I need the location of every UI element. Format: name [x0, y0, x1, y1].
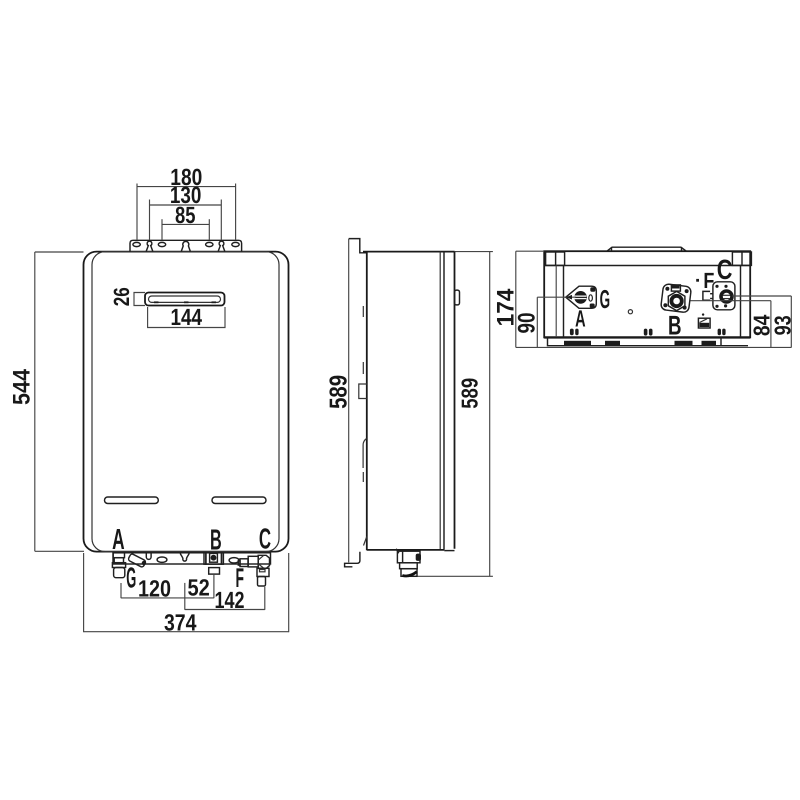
svg-text:142: 142: [215, 587, 245, 613]
svg-text:144: 144: [171, 304, 203, 330]
svg-text:A: A: [112, 524, 125, 556]
svg-text:52: 52: [187, 574, 209, 600]
svg-text:A: A: [575, 306, 586, 332]
svg-text:F: F: [703, 268, 714, 293]
svg-text:589: 589: [456, 378, 482, 409]
svg-text:G: G: [600, 284, 611, 314]
svg-text:93: 93: [769, 315, 795, 335]
svg-text:90: 90: [514, 313, 541, 334]
svg-text:B: B: [210, 525, 222, 557]
svg-text:G: G: [126, 563, 136, 595]
svg-text:B: B: [668, 311, 682, 341]
svg-text:C: C: [717, 254, 733, 285]
svg-text:120: 120: [138, 576, 171, 602]
svg-text:544: 544: [8, 368, 35, 405]
svg-text:374: 374: [164, 609, 197, 635]
svg-text:26: 26: [109, 287, 134, 306]
svg-text:85: 85: [175, 202, 196, 228]
svg-text:C: C: [259, 524, 271, 556]
svg-text:589: 589: [325, 375, 352, 409]
